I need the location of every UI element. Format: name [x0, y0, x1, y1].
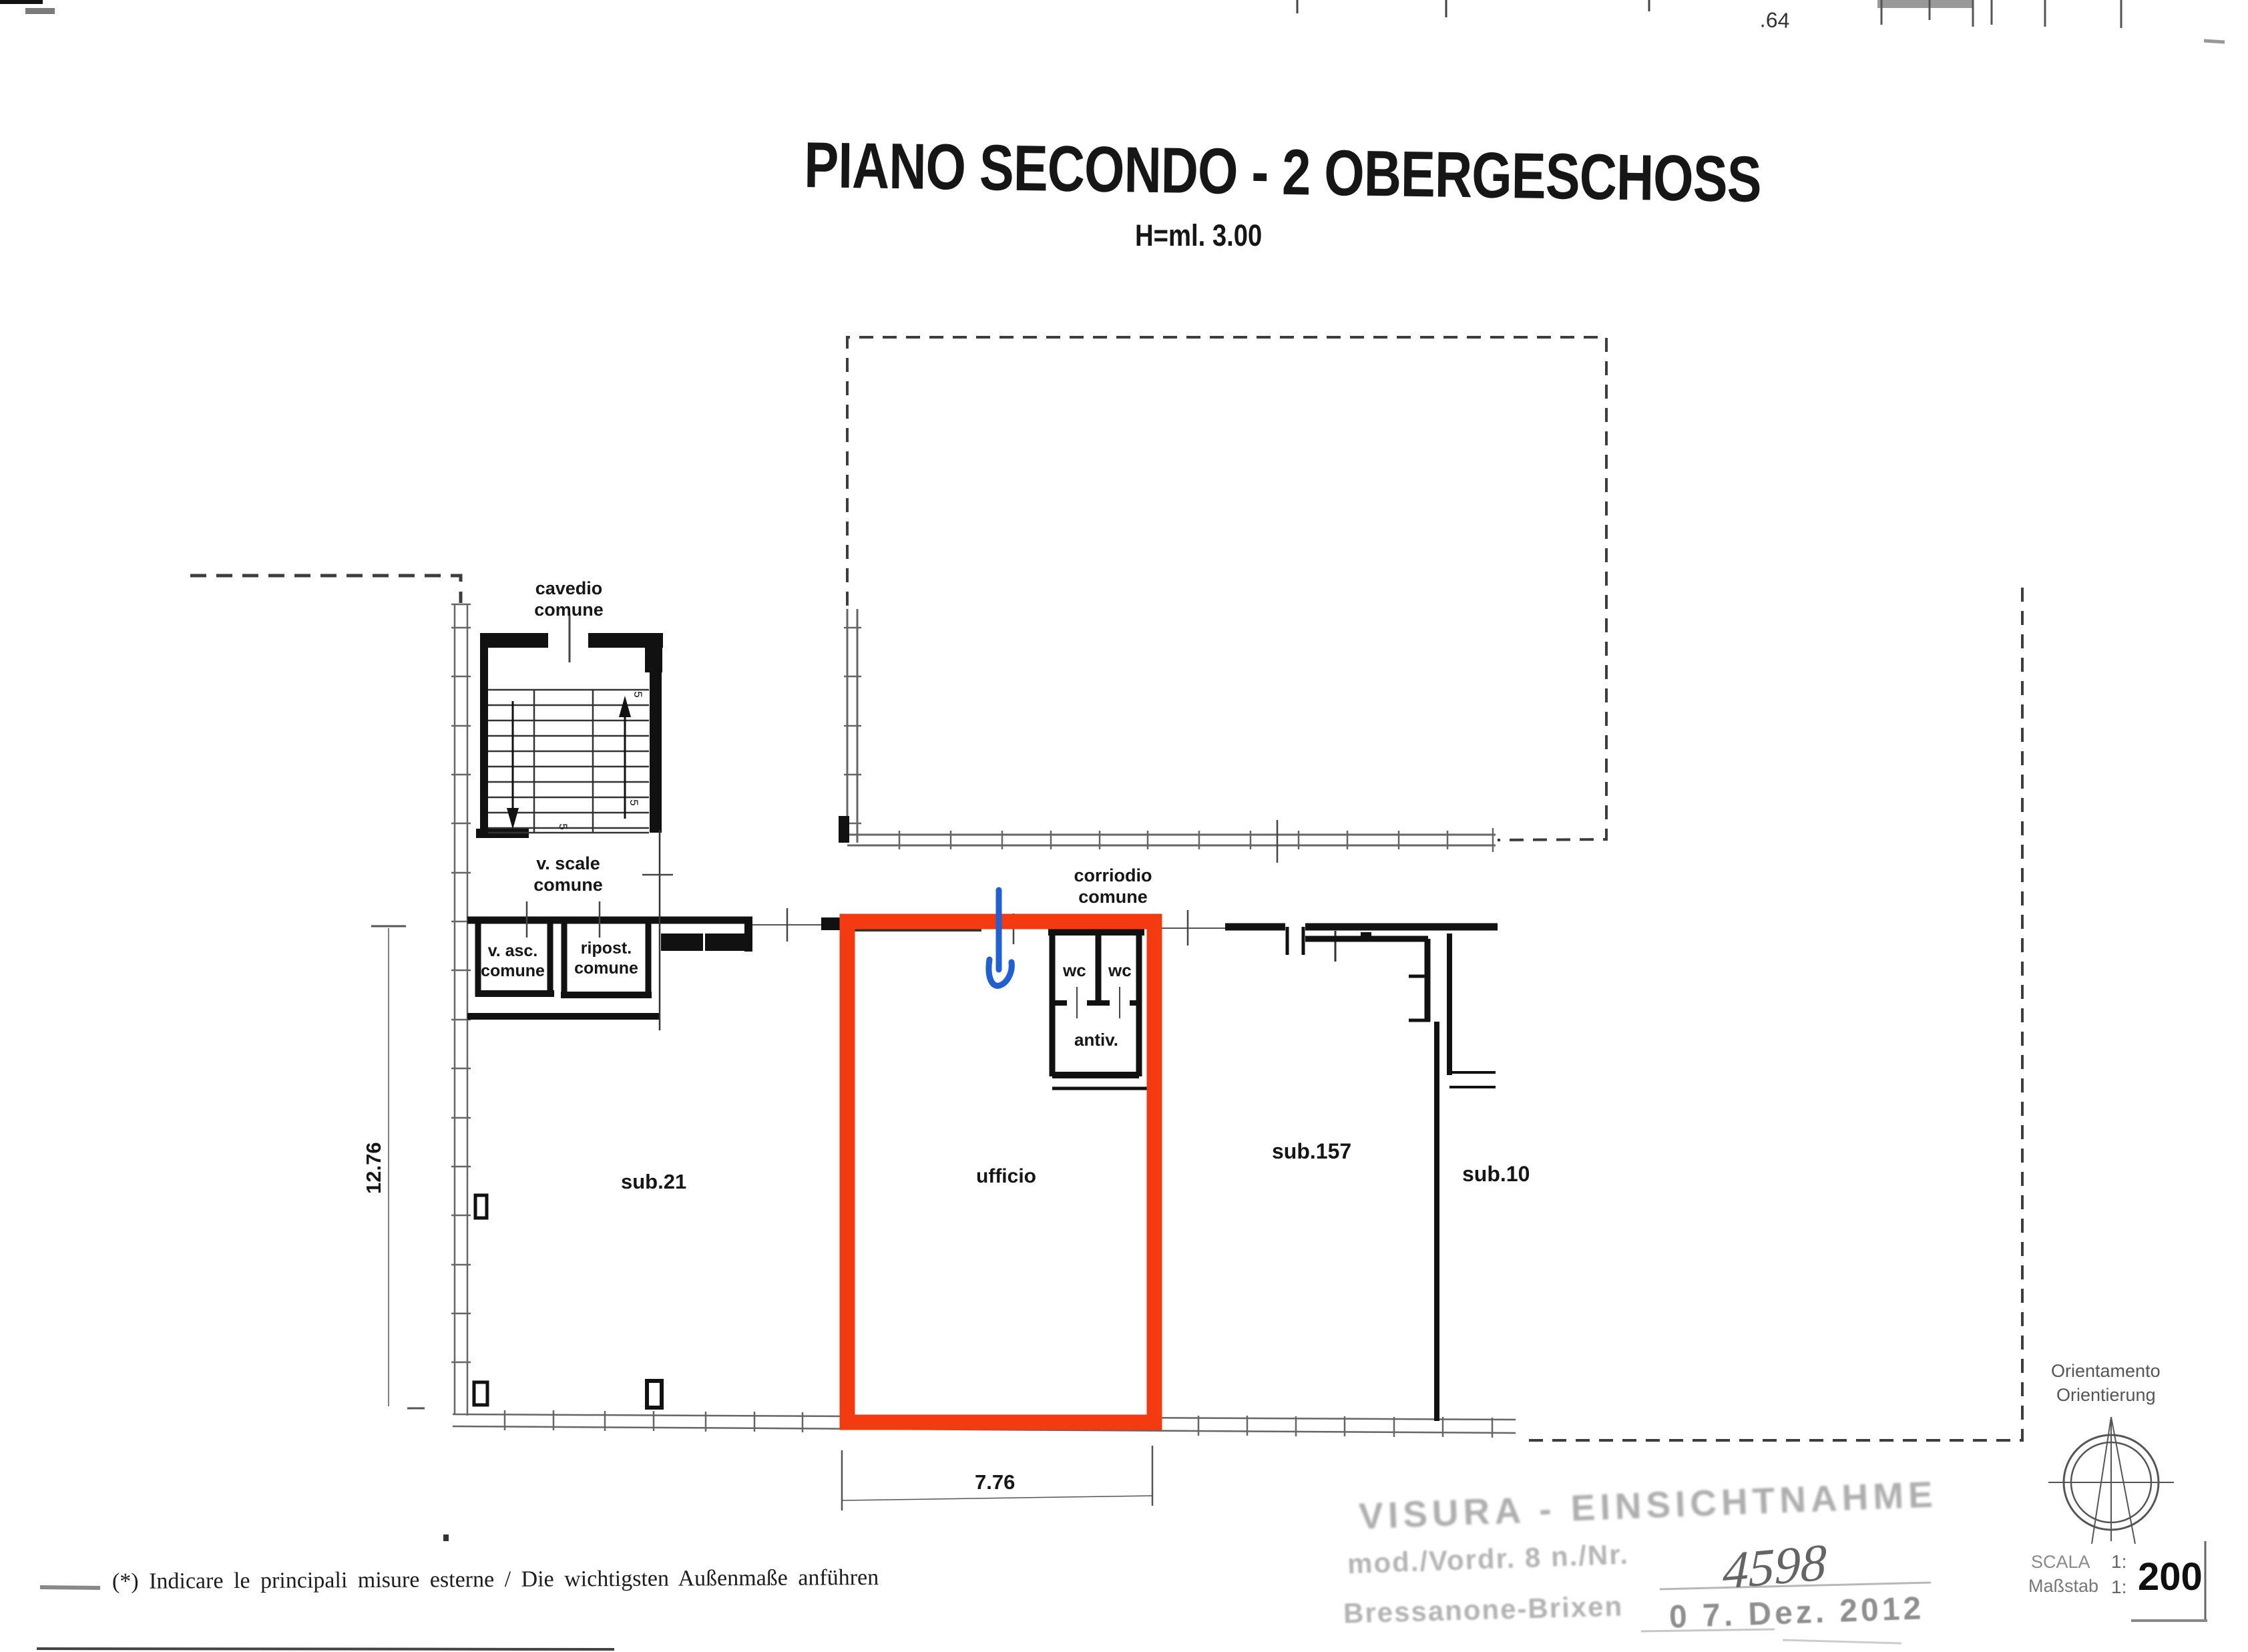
stair-count-mark: 5: [627, 799, 640, 805]
room-label-antiv: antiv.: [1066, 1030, 1127, 1050]
room-label-wc-left: wc: [1063, 960, 1086, 981]
room-label-sub157: sub.157: [1272, 1139, 1351, 1165]
room-label-line: comune: [522, 600, 616, 621]
stair-direction-arrows: [507, 696, 631, 829]
compass-icon: [2048, 1417, 2174, 1544]
floor-plan-drawing: [0, 0, 2248, 1652]
dimension-text-left: 12.76: [362, 1142, 387, 1194]
room-label-line: v. scale: [518, 853, 618, 875]
scale-label-de: Maßstab: [2028, 1576, 2098, 1597]
stair-count-mark: 5: [556, 823, 570, 829]
room-label-sub10: sub.10: [1462, 1162, 1530, 1187]
stair-count-mark: 5: [631, 691, 644, 697]
scale-value: 200: [2138, 1555, 2203, 1600]
room-label-cavedio: cavedio comune: [522, 578, 616, 621]
entrance-arrow-annotation: [989, 890, 1011, 986]
exterior-walls: [451, 604, 1516, 1438]
wall-markers: [474, 1195, 662, 1408]
scale-ratio-bottom: 1:: [2111, 1576, 2126, 1598]
stamp-handwritten-number: 4598: [1722, 1531, 1827, 1602]
room-label-wc-right: wc: [1108, 960, 1132, 981]
room-label-line: comune: [566, 959, 646, 979]
room-label-line: comune: [518, 875, 618, 896]
room-label-corridoio: corriodio comune: [1054, 865, 1172, 908]
orientation-label-it: Orientamento: [2051, 1361, 2161, 1382]
height-note: H=ml. 3.00: [1135, 218, 1262, 253]
wc-block-walls: [1048, 932, 1147, 1088]
room-label-line: v. asc.: [477, 942, 549, 962]
scale-label-it: SCALA: [2031, 1552, 2090, 1573]
room-label-line: comune: [477, 962, 549, 982]
dimension-text-bottom: 7.76: [975, 1470, 1015, 1495]
room-label-line: cavedio: [522, 578, 616, 600]
page-title: PIANO SECONDO - 2 OBERGESCHOSS: [804, 127, 1761, 218]
scan-artifacts-top: [0, 0, 2225, 42]
room-label-sub21: sub.21: [621, 1170, 686, 1195]
room-label-line: ripost.: [566, 939, 646, 959]
room-label-line: comune: [1054, 887, 1172, 908]
room-label-v-asc: v. asc. comune: [477, 942, 549, 981]
scale-ratio-top: 1:: [2111, 1551, 2126, 1573]
footnote: (*) Indicare le principali misure estern…: [112, 1565, 879, 1595]
room-label-line: corriodio: [1054, 865, 1172, 887]
scan-mark: [0, 0, 43, 4]
scan-mark: [25, 8, 55, 14]
room-label-ripost: ripost. comune: [566, 939, 646, 978]
room-label-v-scale: v. scale comune: [518, 853, 618, 896]
top-fragment-dimension: .64: [1759, 7, 1790, 33]
floor-plan-page: PIANO SECONDO - 2 OBERGESCHOSS H=ml. 3.0…: [0, 0, 2248, 1652]
orientation-label-de: Orientierung: [2056, 1385, 2156, 1406]
room-label-ufficio: ufficio: [976, 1165, 1036, 1188]
